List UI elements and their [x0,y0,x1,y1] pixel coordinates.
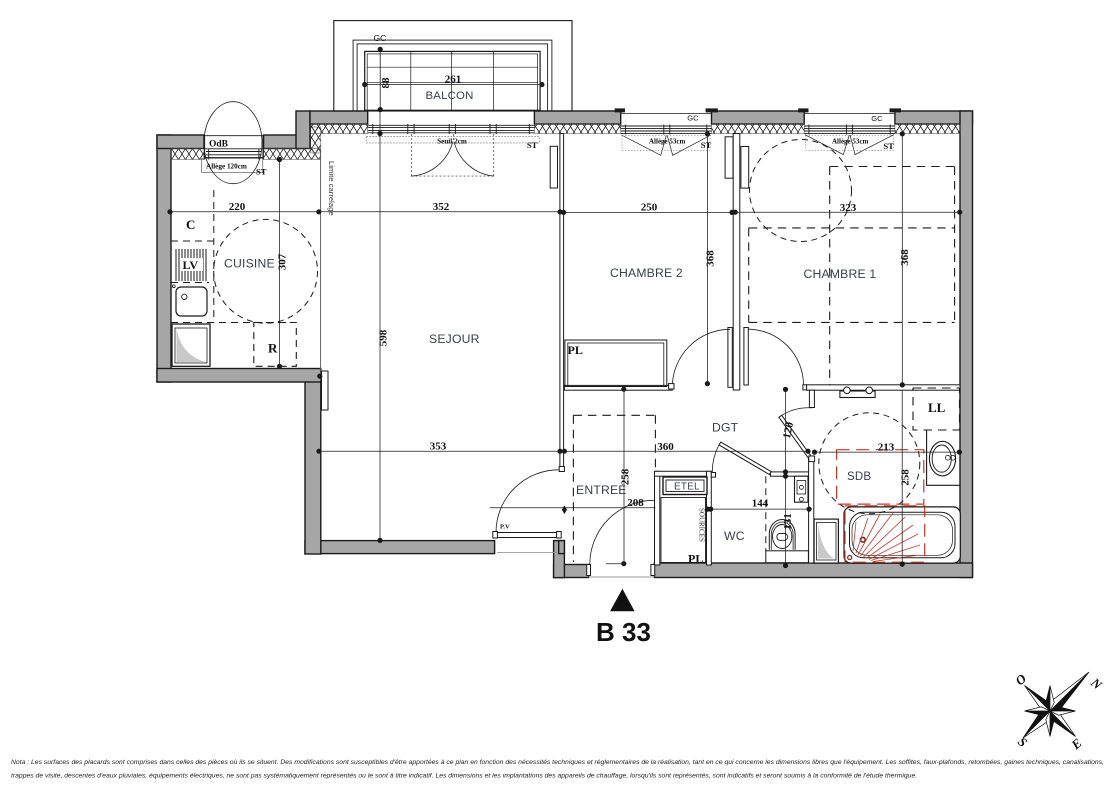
svg-text:CHAMBRE 2: CHAMBRE 2 [610,266,683,280]
svg-text:GC: GC [871,114,883,123]
svg-text:368: 368 [899,249,911,266]
svg-text:258: 258 [900,469,912,486]
svg-text:DGT: DGT [712,421,739,435]
svg-text:ST: ST [256,167,267,177]
svg-text:261: 261 [445,74,462,86]
svg-text:ST: ST [883,141,894,151]
svg-text:GC: GC [374,33,387,43]
svg-text:SEJOUR: SEJOUR [429,332,480,346]
svg-text:LL: LL [928,400,946,415]
svg-text:Nota : Les surfaces des placar: Nota : Les surfaces des placards sont co… [11,759,1104,766]
svg-text:323: 323 [840,202,857,214]
svg-text:352: 352 [433,201,450,213]
svg-text:R: R [268,341,278,356]
svg-text:Allège 53cm: Allège 53cm [649,138,686,146]
svg-text:CUISINE: CUISINE [224,257,275,271]
svg-text:B 33: B 33 [596,617,651,647]
svg-text:trappes de visite, descentes d: trappes de visite, descentes d'eaux pluv… [11,773,917,780]
svg-text:Allège 53cm: Allège 53cm [832,138,869,146]
svg-text:LV: LV [183,258,199,272]
svg-text:250: 250 [641,202,658,214]
svg-text:PL: PL [688,552,703,566]
svg-text:ETEL: ETEL [674,482,700,493]
svg-text:ST: ST [701,140,712,150]
svg-text:OdB: OdB [209,140,229,150]
svg-text:360: 360 [657,441,674,453]
svg-text:ST: ST [527,140,538,150]
svg-text:Allège 120cm: Allège 120cm [206,163,247,171]
svg-text:C: C [186,217,195,232]
svg-text:88: 88 [380,77,392,89]
svg-text:353: 353 [430,441,447,453]
svg-text:258: 258 [620,468,632,485]
svg-text:208: 208 [627,497,644,509]
svg-text:SDB: SDB [847,471,871,483]
svg-text:598: 598 [378,329,390,346]
svg-text:WC: WC [724,529,745,543]
svg-text:Limite carrelage: Limite carrelage [327,161,336,216]
svg-text:131: 131 [782,513,794,530]
svg-text:144: 144 [752,498,769,510]
svg-text:307: 307 [277,253,289,270]
svg-text:PL: PL [568,343,583,357]
svg-text:P.V: P.V [500,524,510,531]
svg-text:Seuil 2cm: Seuil 2cm [437,138,467,146]
svg-text:CHAMBRE 1: CHAMBRE 1 [804,267,877,281]
svg-text:GC: GC [687,113,699,122]
svg-text:220: 220 [229,201,246,213]
svg-text:213: 213 [878,441,895,453]
svg-text:SOURICES: SOURICES [698,508,706,542]
svg-text:BALCON: BALCON [425,90,473,102]
svg-text:368: 368 [705,250,717,267]
